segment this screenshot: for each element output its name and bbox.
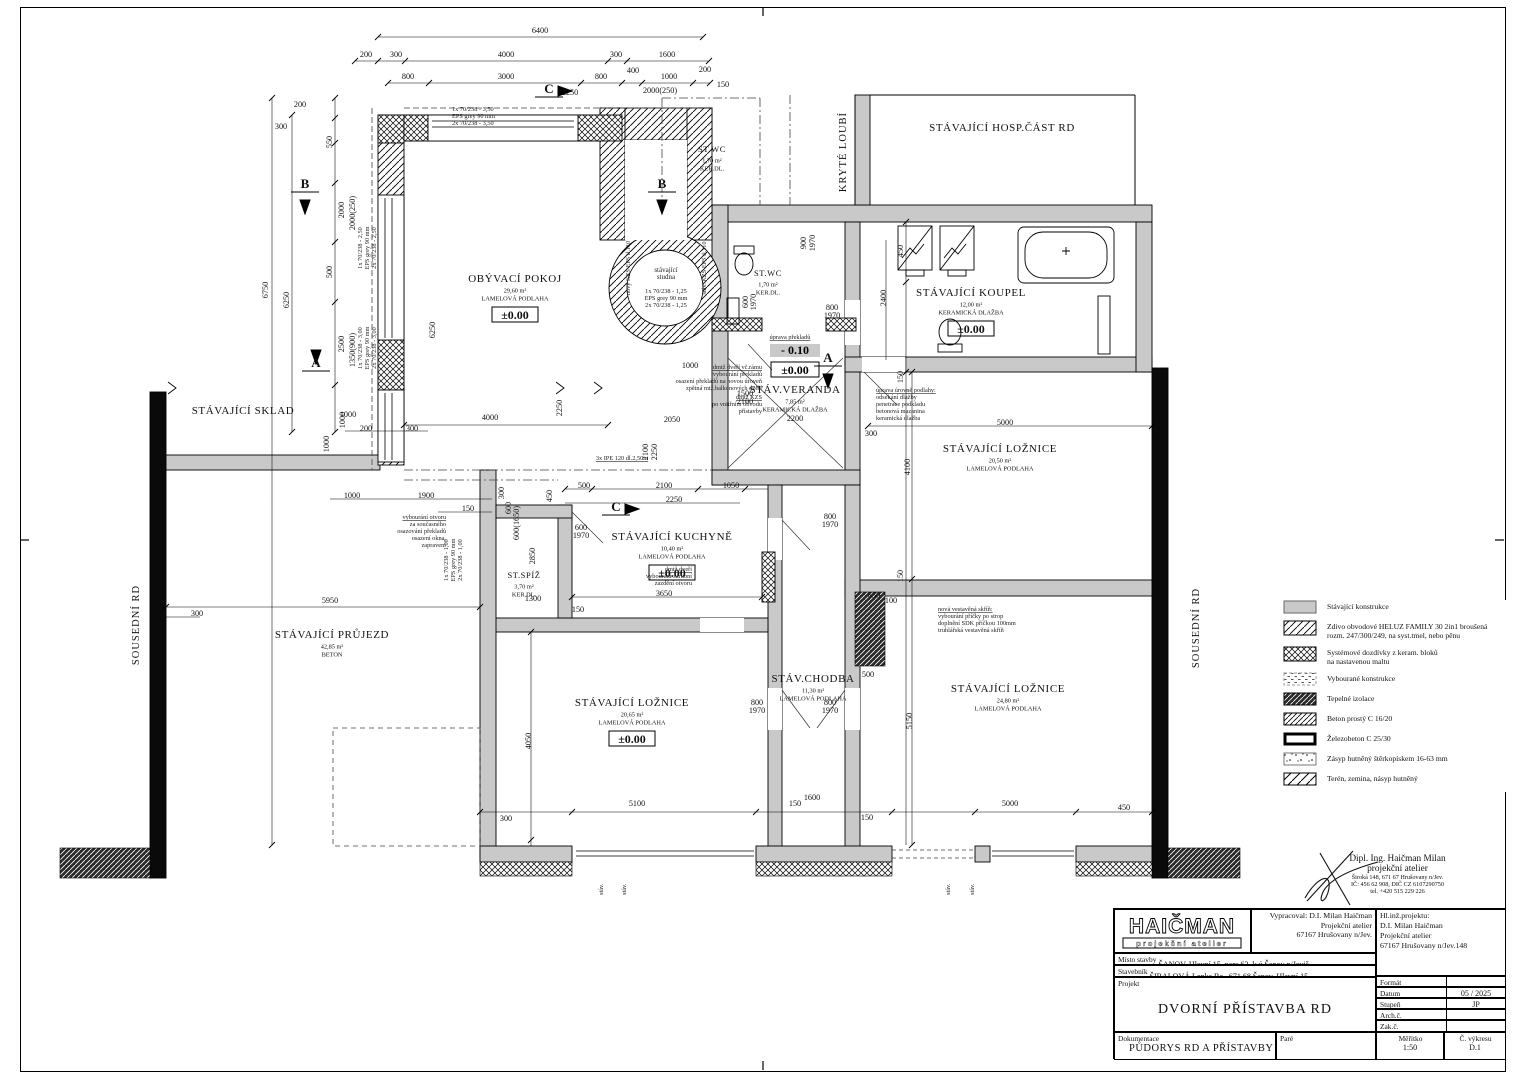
- room-area: 11,30 m²: [802, 688, 824, 695]
- dimension-text: 2250: [650, 444, 659, 460]
- room-floor: LAMELOVÁ PODLAHA: [639, 553, 706, 561]
- stavebnik-cell: Stavebník ŠIBALOVÁ Lenka Bc., 671 68 Šan…: [1114, 965, 1376, 977]
- legend-swatch-concrete: [1283, 712, 1317, 726]
- dimension-text: 6750: [261, 282, 270, 298]
- dimension-text: 1050: [723, 481, 739, 490]
- dimension-text: 5950: [322, 596, 338, 605]
- stamp-phone: tel. +420 515 229 226: [1290, 888, 1505, 895]
- dimension-text: 6250: [282, 292, 291, 308]
- annotation-text: nový KZS EPS tl.110: [625, 241, 632, 295]
- title-block: HAIČMAN projekční atelier Vypracoval: D.…: [1113, 908, 1505, 1059]
- dimension-text: 4050: [524, 733, 533, 749]
- legend-item: Systémové dozdívky z keram. blokůna nast…: [1283, 646, 1515, 666]
- section-letter: C: [544, 81, 553, 96]
- dimension-text: 800: [402, 72, 414, 81]
- annotation-text: 1x 70/238 - 1,00: [443, 539, 450, 581]
- legend-swatch-infill: [1283, 646, 1317, 662]
- room-level: ±0.00: [501, 308, 529, 322]
- washing-machines: [898, 226, 974, 276]
- misto-cell: Místo stavby ŠANOV, Hlavní 15, parc.63, …: [1114, 953, 1376, 965]
- room-floor: KER.DL.: [756, 290, 781, 297]
- dimension-text: 1970: [808, 235, 817, 251]
- logo-text: HAIČMAN: [1129, 914, 1235, 938]
- legend-item: Tepelné izolace: [1283, 692, 1515, 706]
- drawing-title: PŮDORYS RD A PŘÍSTAVBY: [1115, 1043, 1275, 1054]
- room-area: 24,80 m²: [997, 698, 1020, 705]
- section-letter: A: [823, 350, 833, 365]
- room-floor: LAMELOVÁ PODLAHA: [780, 695, 847, 703]
- legend-swatch-demolished: [1283, 672, 1317, 686]
- dimension-text: 1970: [822, 520, 838, 529]
- dimension-text: 600(1650): [512, 506, 521, 540]
- legend-label: Stávající konstrukce: [1327, 602, 1389, 611]
- annotation-text: dmtž dveří vč.rámu: [713, 364, 763, 371]
- logo-cell: HAIČMAN projekční atelier: [1114, 909, 1251, 953]
- datum-value: 05 / 2025: [1447, 988, 1505, 997]
- annotation-text: osazení překladů na novou úroveň: [676, 378, 763, 385]
- room-label: STÁVAJÍCÍ LOŽNICE: [951, 683, 1065, 695]
- dimension-text: 5000: [1002, 799, 1018, 808]
- annotation-text: zazdění otvoru: [655, 580, 693, 587]
- dimension-text: 1000: [682, 361, 698, 370]
- dimension-text: 300: [191, 609, 203, 618]
- room-label: STÁV.VERANDA: [749, 384, 840, 396]
- room-label: STÁVAJÍCÍ KOUPEL: [916, 287, 1026, 299]
- dimension-text: 1000: [340, 410, 356, 419]
- legend-label: Železobeton C 25/30: [1327, 734, 1391, 743]
- annotation-text: zpětná mtž.balkonových dveří: [686, 385, 762, 392]
- dimension-text: 2050: [664, 415, 680, 424]
- annotation-text: vybourání příčky po strop: [938, 613, 1003, 620]
- hlinz-name: D.I. Milan Haičman: [1380, 921, 1443, 930]
- legend-item: Stávající konstrukce: [1283, 600, 1515, 614]
- annotation-text: dmtž KZS: [736, 394, 763, 401]
- dimension-text: 900: [799, 237, 808, 249]
- dimension-text: 5150: [905, 713, 914, 729]
- arch-row: Arch.č.: [1376, 1009, 1506, 1020]
- dimension-text: 500: [862, 670, 874, 679]
- legend-label: Tepelné izolace: [1327, 694, 1374, 703]
- annotation-text: penetrace podkladu: [876, 401, 926, 408]
- dimension-text: 1600: [659, 50, 675, 59]
- annotation-text: vybourání otvoru: [402, 514, 446, 521]
- legend-item: Terén, zemina, násyp hutněný: [1283, 772, 1515, 786]
- room-label: SOUSEDNÍ RD: [1190, 588, 1202, 668]
- legend-item: Železobeton C 25/30: [1283, 732, 1515, 746]
- dimension-text: 300: [390, 50, 402, 59]
- room-label: STÁVAJÍCÍ KUCHYNĚ: [612, 531, 733, 543]
- projekt-label: Projekt: [1115, 978, 1375, 988]
- room-label: OBÝVACÍ POKOJ: [468, 273, 562, 285]
- dimension-text: 200: [699, 65, 711, 74]
- legend-swatch-reinforced: [1283, 732, 1317, 746]
- dokumentace-label: Dokumentace: [1115, 1033, 1275, 1043]
- zak-row: Zak.č.: [1376, 1020, 1506, 1032]
- annotation-text: truhlářská vestavěná skříň: [938, 627, 1005, 634]
- annotation-text: EPS grey 90 mm: [645, 295, 688, 302]
- level-minus: - 0.10: [781, 343, 809, 357]
- dimension-text: 150: [896, 570, 905, 582]
- company-logo: HAIČMAN projekční atelier: [1115, 910, 1250, 952]
- room-floor: LAMELOVÁ PODLAHA: [975, 705, 1042, 713]
- insulation-strips: [60, 592, 1240, 878]
- dimension-text: 400: [627, 66, 639, 75]
- stupen-row: Stupeň JP: [1376, 998, 1506, 1009]
- dimension-text: 2500: [337, 336, 346, 352]
- outbuilding-lines: [855, 95, 1135, 205]
- legend-item: Zdivo obvodové HELUZ FAMILY 30 2in1 brou…: [1283, 620, 1515, 640]
- annotation-text: 3x IPE 120 dl.2,50m: [596, 455, 648, 462]
- misto-label: Místo stavby: [1115, 954, 1158, 964]
- dimension-text: 1970: [822, 706, 838, 715]
- room-label: STÁV.CHODBA: [771, 673, 854, 685]
- legend-swatch-insulation: [1283, 692, 1317, 706]
- level-zero-veranda: ±0.00: [781, 363, 809, 377]
- dimension-text: 150: [789, 799, 801, 808]
- room-floor: KERAMICKÁ DLAŽBA: [938, 309, 1004, 317]
- meritko-cell: Měřítko 1:50: [1376, 1032, 1444, 1060]
- ground-hatch-right: [1168, 848, 1240, 878]
- dimension-text: 550: [325, 136, 334, 148]
- room-label: SOUSEDNÍ RD: [130, 585, 142, 665]
- annotation-text: EPS grey 90 mm: [450, 538, 457, 581]
- dimension-text: 1970: [573, 531, 589, 540]
- room-label: ST.WC: [698, 144, 726, 154]
- dimension-text: 450: [545, 490, 554, 502]
- dimension-text: 300: [275, 122, 287, 131]
- hlinz-label: Hl.inž.projektu:: [1380, 911, 1429, 920]
- projekt-title: DVORNÍ PŘÍSTAVBA RD: [1115, 1002, 1375, 1018]
- section-letter: C: [611, 499, 620, 514]
- annotation-text: betonová mazanina: [876, 408, 925, 415]
- dimension-text: 300: [500, 814, 512, 823]
- dimension-text: 2000: [337, 202, 346, 218]
- dimension-text: 300: [610, 50, 622, 59]
- room-area: 10,40 m²: [661, 546, 684, 553]
- dimension-text: 6400: [532, 26, 548, 35]
- hlinz-cell: Hl.inž.projektu: D.I. Milan Haičman Proj…: [1376, 909, 1506, 976]
- stamp-address: Široká 148, 671 67 Hrušovany n/Jev.: [1290, 874, 1505, 881]
- level-markers: - 0.10 ±0.00: [770, 343, 820, 377]
- room-area: 7,85 m²: [785, 399, 804, 406]
- stupen-value: JP: [1447, 999, 1505, 1008]
- annotation-text: přístavby: [739, 408, 763, 415]
- dimension-text: 1000: [661, 72, 677, 81]
- dimension-text: 4000: [482, 413, 498, 422]
- room-area: 29,60 m²: [504, 288, 527, 295]
- projekt-cell: Projekt DVORNÍ PŘÍSTAVBA RD: [1114, 977, 1376, 1032]
- room-area: 1,70 m²: [702, 158, 721, 165]
- legend-label: Beton prostý C 16/20: [1327, 714, 1392, 723]
- room-floor: BETON: [322, 652, 343, 659]
- legend-label: Systémové dozdívky z keram. bloků: [1327, 648, 1438, 657]
- room-area: 42,85 m²: [321, 644, 344, 651]
- dimension-text: 2850: [528, 548, 537, 564]
- room-label: ST.WC: [754, 268, 782, 278]
- dimension-text: 150: [896, 371, 905, 383]
- legend: Stávající konstrukce Zdivo obvodové HELU…: [1283, 600, 1515, 792]
- vypracoval-name: D.I. Milan Haičman: [1309, 911, 1372, 920]
- toilet-wc: [727, 246, 754, 324]
- section-letter: A: [311, 355, 321, 370]
- dimension-text: 200: [294, 100, 306, 109]
- dimension-text: 450: [896, 245, 905, 257]
- annotation-text: 2x 70/238 - 2,50: [371, 227, 378, 269]
- annotation-text: úprava úrovně podlahy:: [876, 387, 936, 394]
- annotation-text: stáv. KZS EPS tl.110: [701, 241, 708, 294]
- dimension-text: 300: [497, 487, 506, 499]
- dimension-text: 200: [360, 50, 372, 59]
- stamp-atelier: projekční atelier: [1290, 864, 1505, 874]
- room-area: 20,65 m²: [621, 712, 644, 719]
- room-area: 12,00 m²: [960, 302, 983, 309]
- dimension-text: 100: [885, 596, 897, 605]
- dimension-text: 650: [868, 591, 880, 600]
- annotation-text: odsekání dlažby: [876, 394, 918, 401]
- dimension-text: 1000: [322, 436, 331, 452]
- room-area: 1,70 m²: [758, 282, 777, 289]
- room-label: KRYTÉ LOUBÍ: [837, 112, 849, 192]
- room-area: 3,70 m²: [514, 584, 533, 591]
- legend-label: Vybourané konstrukce: [1327, 674, 1395, 683]
- section-letter: B: [658, 176, 667, 191]
- dimension-text: 150: [717, 80, 729, 89]
- dimension-text: 450: [1118, 803, 1130, 812]
- annotation-text: 1x 70/238 - 3,00: [357, 327, 364, 369]
- legend-item: Beton prostý C 16/20: [1283, 712, 1515, 726]
- format-row: Formát: [1376, 976, 1506, 987]
- annotation-text: 2x 70/238 - 1,00: [457, 539, 464, 581]
- annotation-text: 2x 70/238 - 3,00: [371, 327, 378, 369]
- dimension-text: 1350(900): [348, 333, 357, 367]
- annotation-text: 2x 70/238 - 1,25: [645, 302, 687, 309]
- room-area: 20,50 m²: [989, 458, 1012, 465]
- dimension-text: 2100: [656, 481, 672, 490]
- dimension-text: 2250: [666, 495, 682, 504]
- annotation-text: dmtž dveří: [665, 566, 692, 573]
- dimension-text: 6250: [428, 322, 437, 338]
- dimension-text: 5100: [629, 799, 645, 808]
- party-wall-right: [1152, 368, 1168, 878]
- room-label: STÁVAJÍCÍ PRŮJEZD: [275, 628, 389, 641]
- annotation-text: studna: [657, 273, 676, 281]
- dimension-text: 800: [595, 72, 607, 81]
- annotation-text: 2x 70/238 - 3,50: [452, 120, 494, 127]
- dimension-text: 1970: [824, 311, 840, 320]
- dimension-text: 2000(250): [643, 86, 677, 95]
- legend-label: Zásyp hutněný štěrkopískem 16-63 mm: [1327, 754, 1448, 763]
- vykres-cell: Č. výkresu D.1: [1444, 1032, 1506, 1060]
- annotation-text: za současného: [410, 521, 446, 528]
- room-floor: KER.DL.: [700, 166, 725, 173]
- annotation-text: stáv.: [969, 883, 976, 895]
- party-wall-left: [150, 392, 166, 878]
- annotation-text: doplnění SDK příčkou 100mm: [938, 620, 1016, 627]
- scale-value: 1:50: [1377, 1043, 1443, 1052]
- dimension-text: 500: [325, 266, 334, 278]
- room-floor: KERAMICKÁ DLAŽBA: [762, 406, 828, 414]
- dimension-text: 150: [462, 504, 474, 513]
- annotation-text: úprava překladů: [770, 334, 812, 341]
- legend-item: Vybourané konstrukce: [1283, 672, 1515, 686]
- annotation-text: osazování překladů: [397, 528, 447, 535]
- drawing-number: D.1: [1445, 1043, 1505, 1052]
- room-label: ST.SPÍŽ: [507, 570, 540, 580]
- dimension-text: 2250: [562, 88, 578, 97]
- room-floor: LAMELOVÁ PODLAHA: [482, 295, 549, 303]
- dimension-text: 300: [865, 429, 877, 438]
- legend-item: Zásyp hutněný štěrkopískem 16-63 mm: [1283, 752, 1515, 766]
- room-floor: LAMELOVÁ PODLAHA: [599, 719, 666, 727]
- dimension-text: 300: [406, 424, 418, 433]
- annotation-text: stáv.: [945, 883, 952, 895]
- annotation-text: 1x 70/238 - 2,50: [357, 227, 364, 269]
- room-level: ±0.00: [957, 322, 985, 336]
- legend-swatch-heluz: [1283, 620, 1317, 636]
- annotation-text: nová vestavěná skříň:: [938, 606, 993, 613]
- vypracoval-cell: Vypracoval: D.I. Milan Haičman Projekční…: [1251, 909, 1376, 953]
- annotation-text: 1x 70/238 - 3,50: [452, 106, 494, 113]
- dimension-text: 2250: [555, 400, 564, 416]
- dimension-text: 1300: [525, 594, 541, 603]
- section-letter: B: [301, 176, 310, 191]
- annotation-text: EPS grey 90 mm: [452, 113, 495, 120]
- annotation-text: vybourání zárubní: [646, 573, 692, 580]
- dimension-text: 2400: [879, 290, 888, 306]
- built-in-closet: [855, 592, 885, 666]
- stavebnik-label: Stavebník: [1115, 966, 1150, 976]
- dimension-text: 2000(250): [348, 196, 357, 230]
- legend-swatch-terrain: [1283, 772, 1317, 786]
- dimension-text: 500: [578, 481, 590, 490]
- pare-cell: Paré: [1276, 1032, 1376, 1060]
- room-floor: LAMELOVÁ PODLAHA: [967, 465, 1034, 473]
- dimension-text: 5000: [997, 418, 1013, 427]
- annotation-text: vybourání překladů: [713, 371, 763, 378]
- logo-subtext: projekční atelier: [1136, 939, 1228, 948]
- room-label: STÁVAJÍCÍ LOŽNICE: [943, 443, 1057, 455]
- stamp-ico: IČ: 456 62 908, DIČ CZ 6107290750: [1290, 881, 1505, 888]
- annotation-text: EPS grey 90 mm: [364, 226, 371, 269]
- legend-label: Terén, zemina, násyp hutněný: [1327, 774, 1418, 783]
- dimension-text: 1000: [344, 491, 360, 500]
- dimension-text: 3650: [656, 589, 672, 598]
- annotation-text: keramická dlažba: [876, 415, 920, 422]
- annotation-text: stáv.: [598, 883, 605, 895]
- dimension-text: 1970: [749, 294, 758, 310]
- stamp-name: Dipl. Ing. Haičman Milan: [1290, 854, 1505, 864]
- gate-opening: [333, 728, 480, 846]
- dimension-text: 150: [861, 813, 873, 822]
- annotation-text: 1x 70/238 - 1,25: [645, 288, 687, 295]
- annotation-text: EPS grey 90 mm: [364, 326, 371, 369]
- datum-row: Datum 05 / 2025: [1376, 987, 1506, 998]
- room-label: STÁVAJÍCÍ HOSP.ČÁST RD: [929, 122, 1075, 134]
- drawing-page: { "levels": {"zero":"±0.00","minus":"- 0…: [0, 0, 1526, 1080]
- dimension-text: 3000: [498, 72, 514, 81]
- dimension-text: 1600: [804, 793, 820, 802]
- annotation-text: po vnitřním obvodu: [712, 401, 763, 408]
- legend-label: Zdivo obvodové HELUZ FAMILY 30 2in1 brou…: [1327, 622, 1487, 631]
- dimension-text: 200: [360, 424, 372, 433]
- designer-stamp: Dipl. Ing. Haičman Milan projekční ateli…: [1290, 854, 1505, 895]
- room-label: STÁVAJÍCÍ LOŽNICE: [575, 697, 689, 709]
- section-markers: [291, 86, 842, 515]
- dimension-text: 1970: [749, 706, 765, 715]
- annotation-text: osazení okna,: [412, 535, 447, 542]
- room-level: ±0.00: [618, 732, 646, 746]
- room-label: STÁVAJÍCÍ SKLAD: [192, 405, 295, 417]
- vypracoval-label: Vypracoval:: [1270, 911, 1308, 920]
- dimension-text: 150: [572, 605, 584, 614]
- ground-hatch-left: [60, 848, 150, 878]
- dimension-text: 4000: [498, 50, 514, 59]
- dimension-text: 2200: [787, 414, 803, 423]
- legend-swatch-gravel: [1283, 752, 1317, 766]
- dimension-text: 1900: [418, 491, 434, 500]
- bathroom-niche: [1098, 296, 1110, 354]
- annotation-text: stáv.: [621, 883, 628, 895]
- dimension-text: 4100: [903, 459, 912, 475]
- dokumentace-cell: Dokumentace PŮDORYS RD A PŘÍSTAVBY: [1114, 1032, 1276, 1060]
- legend-swatch-existing: [1283, 600, 1317, 614]
- bathtub: [1018, 227, 1114, 283]
